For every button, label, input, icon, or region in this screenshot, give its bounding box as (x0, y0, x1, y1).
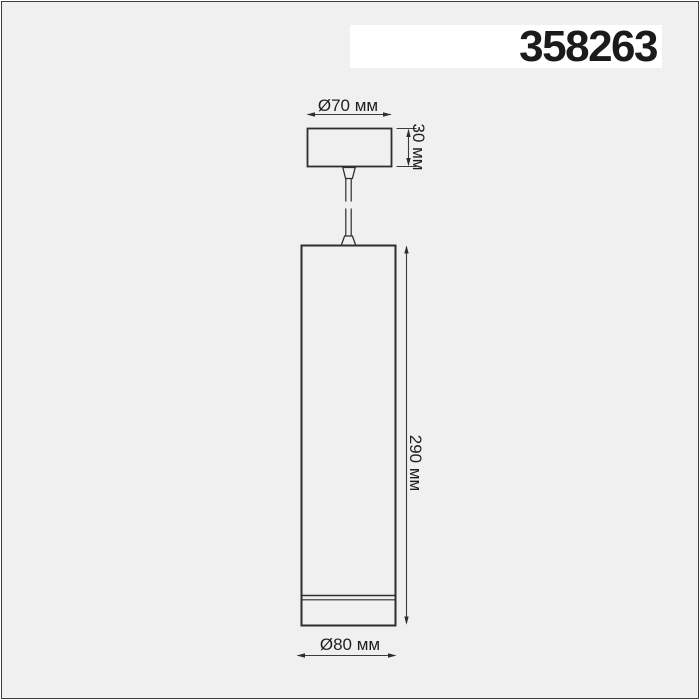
body-outline (302, 246, 396, 626)
dim-label-canopy-diameter: Ø70 мм (288, 96, 408, 116)
dim-label-body-height: 290 мм (405, 435, 425, 491)
arrowhead-290-up (404, 245, 408, 253)
fixture-outline (302, 129, 396, 626)
canopy-outline (308, 129, 392, 167)
cable-gland-top (343, 168, 355, 179)
dim-label-canopy-height: 30 мм (408, 123, 428, 170)
dimension-lines (297, 112, 417, 657)
arrowhead-290-down (404, 617, 408, 625)
diagram-canvas: 358263 (0, 0, 700, 700)
cable-gland-bottom (341, 236, 356, 246)
dim-label-body-diameter: Ø80 мм (290, 635, 410, 655)
